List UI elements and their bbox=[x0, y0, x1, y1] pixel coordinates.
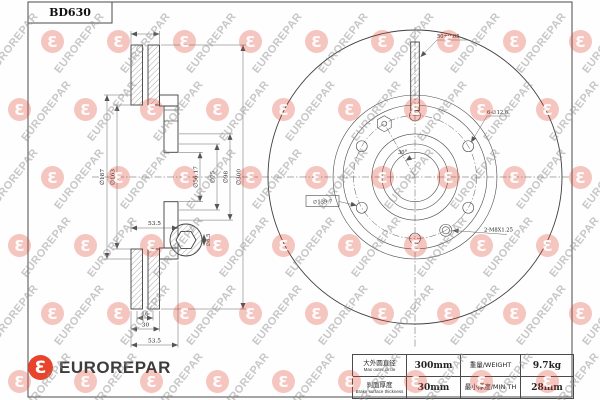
bolt-hole bbox=[463, 202, 474, 213]
label-service-holes: 2-M8X1.25 bbox=[484, 228, 513, 234]
brand-logo-icon: Ɛ bbox=[28, 355, 53, 380]
spec-label-outer-circle: 大外圆直径 Max outer circle bbox=[353, 355, 407, 377]
dim-hat-outer: ∅187 bbox=[99, 169, 106, 185]
dim-angle: 30° bbox=[398, 150, 408, 156]
spec-label-thickness: 刹面厚度 Brake surface thickness bbox=[353, 377, 407, 398]
dim-hat-inner: ∅163 bbox=[110, 169, 117, 185]
spec-table: 大外圆直径 Max outer circle 300mm 重量/WEIGHT 9… bbox=[352, 354, 574, 399]
dim-height-mid: 53.5 bbox=[148, 221, 161, 227]
spec-label-weight: 重量/WEIGHT bbox=[461, 355, 521, 377]
dim-height-bottom: 53.5 bbox=[148, 339, 161, 345]
brand-name: EUROREPAR bbox=[59, 358, 171, 378]
brand-footer: Ɛ EUROREPAR bbox=[28, 355, 171, 380]
part-number: BD630 bbox=[49, 6, 91, 19]
spec-value-weight: 9.7kg bbox=[521, 355, 573, 377]
dim-bore: ∅56.17 bbox=[193, 166, 200, 188]
label-pcd: ∅139.7 bbox=[313, 200, 332, 206]
dim-flange-thickness: 16 bbox=[141, 312, 149, 318]
dim-disc-thickness: 30 bbox=[142, 323, 150, 329]
dim-hub: ∅98 bbox=[223, 170, 230, 183]
spec-label-min-thickness: 最小厚度/MIN TH bbox=[461, 377, 521, 398]
section-view: ∅6.5 ∅187 ∅163 ∅56.17 ∅75 bbox=[92, 31, 258, 348]
spec-value-thickness: 30mm bbox=[407, 377, 461, 398]
bolt-hole bbox=[356, 202, 367, 213]
label-stud: 50±0.05 bbox=[437, 34, 460, 40]
drawing-page: BD630 ∅6.5 bbox=[0, 0, 600, 400]
technical-drawing: BD630 ∅6.5 bbox=[0, 0, 600, 400]
front-view: 30° 50±0.05 6-∅12.6 ∅139.7 2-M8X1.25 bbox=[262, 27, 570, 348]
wheel-stud-section bbox=[411, 42, 420, 111]
spec-value-min-thickness: 28mm bbox=[521, 377, 573, 398]
drawing-frame: BD630 bbox=[28, 2, 572, 397]
dim-hex-detail: ∅6.5 bbox=[206, 234, 212, 247]
dim-outer-diameter: ∅300 bbox=[236, 169, 243, 185]
spec-value-outer-circle: 300mm bbox=[407, 355, 461, 377]
label-bolt-holes: 6-∅12.6 bbox=[487, 110, 508, 116]
dim-register: ∅75 bbox=[210, 170, 217, 183]
